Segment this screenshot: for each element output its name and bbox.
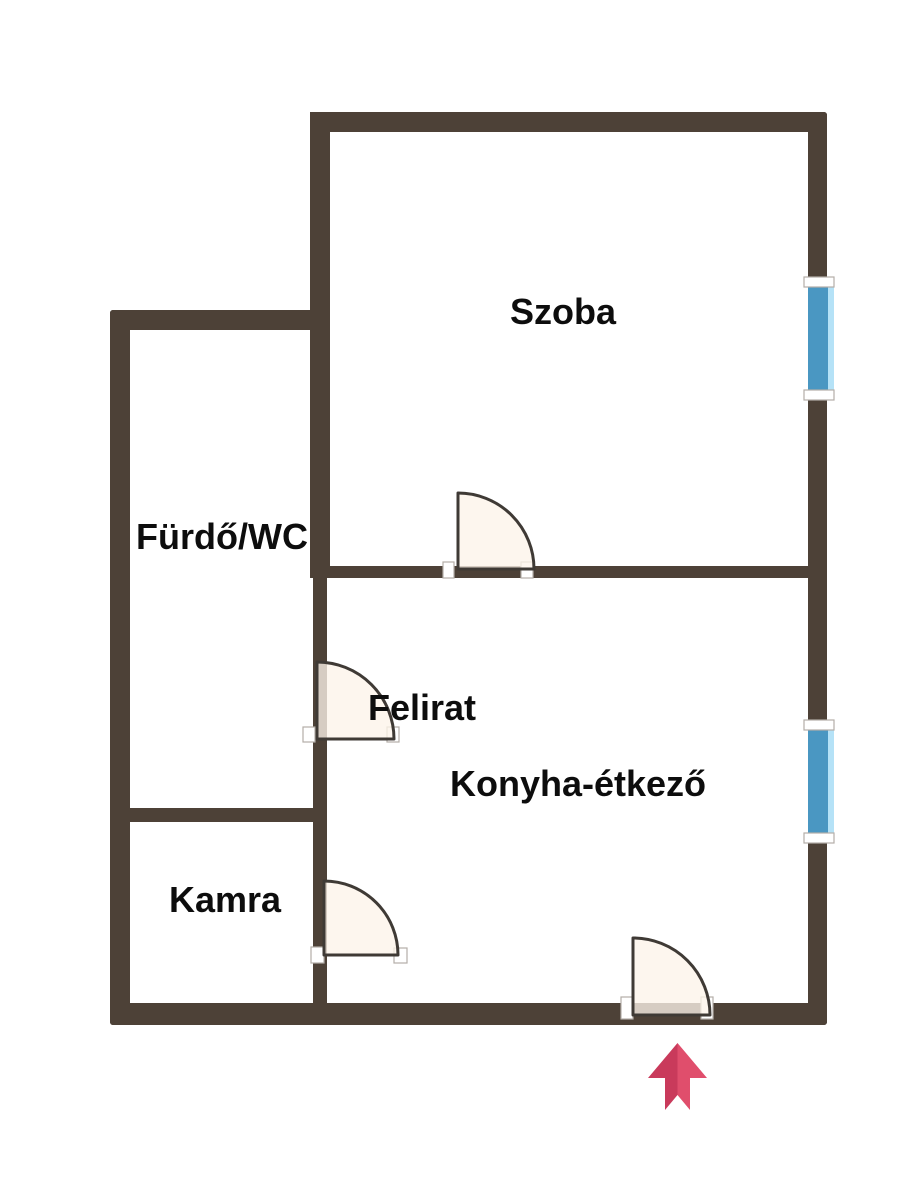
konyha-window-outer-strip — [828, 730, 834, 833]
wall-right — [808, 112, 827, 1025]
szoba-door-cap-left — [443, 562, 454, 578]
szoba-window-icon — [804, 277, 834, 400]
wall-top — [310, 112, 827, 132]
felirat-door-cap-left — [303, 727, 315, 742]
szoba-door-arc-icon — [458, 493, 534, 569]
wall-left — [110, 310, 130, 1025]
entrance-door-arc-icon — [633, 938, 710, 1015]
room-label-kamra: Kamra — [169, 879, 281, 921]
entrance-door-cap-left — [621, 997, 633, 1019]
szoba-window-cap-bottom — [804, 390, 834, 400]
wall-furdo-kamra — [128, 808, 322, 822]
entrance-arrow-icon — [648, 1043, 707, 1110]
kamra-door-cap-left — [311, 947, 324, 963]
entrance-arrow-right-facet — [678, 1043, 708, 1110]
wall-bottom — [110, 1003, 827, 1025]
kamra-door-arc-icon — [324, 881, 398, 955]
room-label-konyha-etkezo: Konyha-étkező — [450, 763, 706, 805]
konyha-window-icon — [804, 720, 834, 843]
konyha-window-cap-bottom — [804, 833, 834, 843]
szoba-window-cap-top — [804, 277, 834, 287]
wall-furdo-top — [110, 310, 330, 330]
room-label-felirat: Felirat — [368, 687, 476, 729]
room-label-furdo-wc: Fürdő/WC — [136, 516, 308, 558]
wall-szoba-konyha — [320, 566, 808, 578]
room-label-szoba: Szoba — [510, 291, 616, 333]
entrance-arrow-left-facet — [648, 1043, 678, 1110]
wall-szoba-left — [310, 112, 330, 578]
szoba-window-glass — [808, 287, 828, 390]
konyha-window-cap-top — [804, 720, 834, 730]
konyha-window-glass — [808, 730, 828, 833]
szoba-window-outer-strip — [828, 287, 834, 390]
floorplan-canvas: Szoba Fürdő/WC Felirat Konyha-étkező Kam… — [0, 0, 920, 1180]
floorplan-drawing — [0, 0, 920, 1180]
